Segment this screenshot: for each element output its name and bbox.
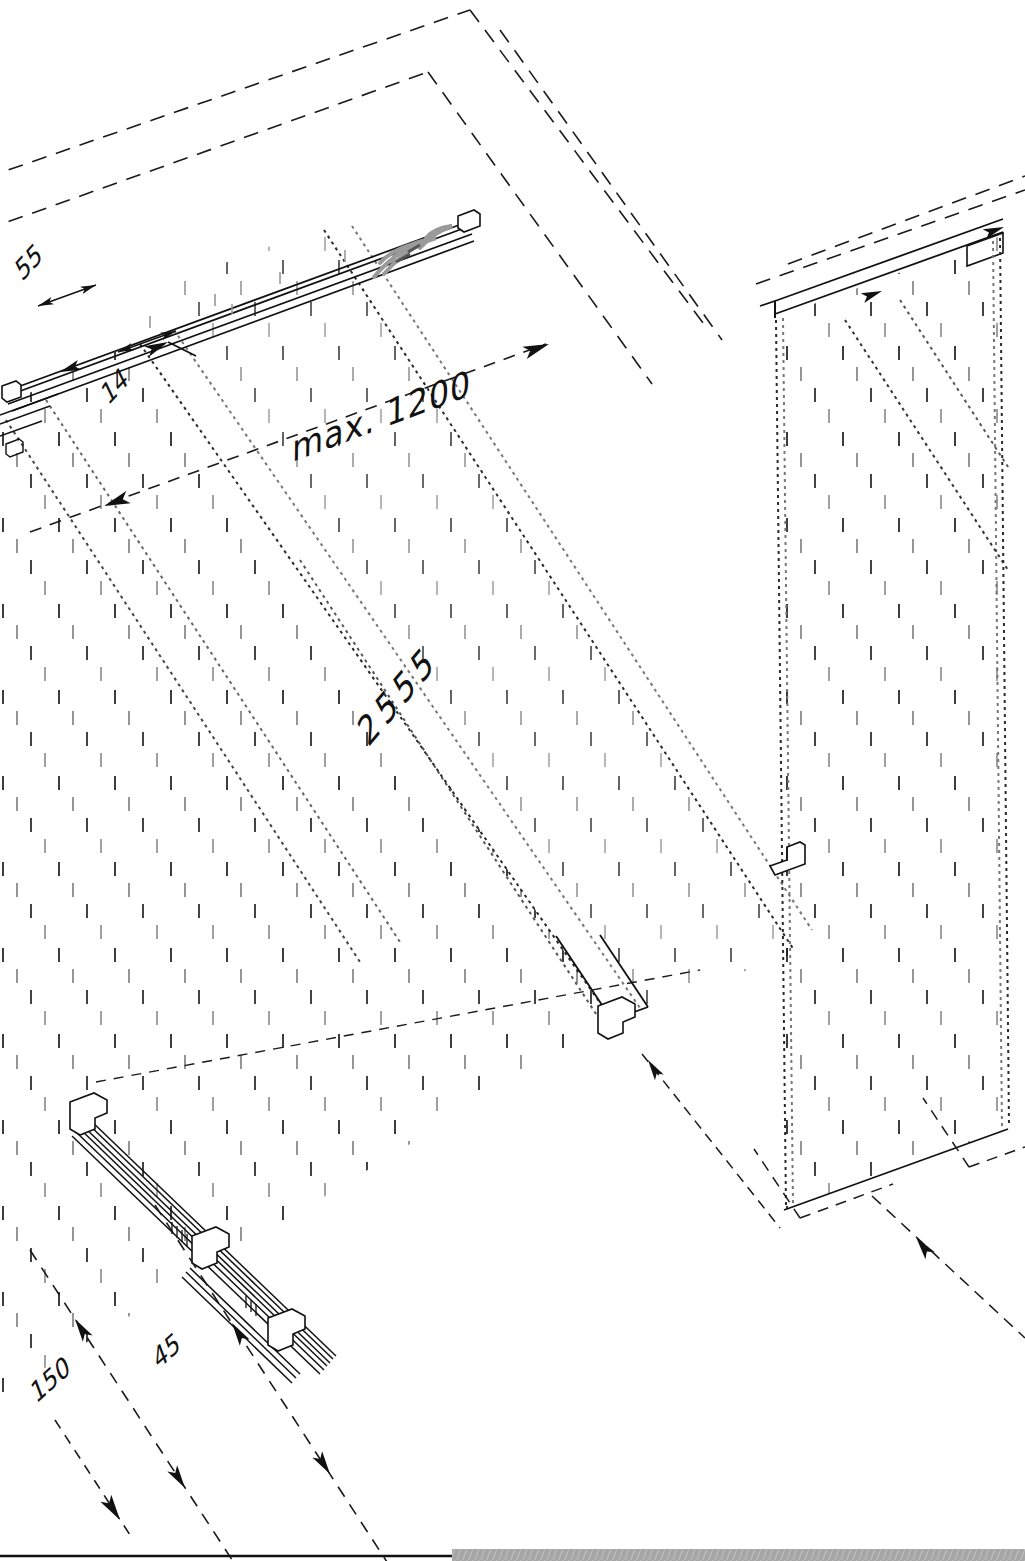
page-bottom-frame [0,1549,1025,1561]
panel-top-step [760,301,775,318]
rail-endcap-right [458,210,480,232]
dim-stub [55,1420,132,1538]
dim-arrow [80,281,97,294]
gray-band [452,1549,1025,1561]
hidden-corner [969,1147,1025,1167]
rail-endcap-left [2,381,21,402]
relation-line [642,1054,780,1228]
technical-drawing-canvas: 55 14 max. 1200 2555 [0,0,1025,1561]
right-panel [754,176,1025,1338]
dim-label-bracket-gap: 45 [145,1328,186,1375]
dim-arrow [312,1451,335,1477]
right-panel-front-face [775,236,1010,1210]
dim-arrow [37,297,54,310]
dim-label-offset-top: 55 [7,239,48,286]
rail-bracket [268,1309,305,1351]
rail-bracket [192,1227,229,1269]
dim-arrow [522,338,551,359]
panel-corner-bracket [598,997,635,1039]
dim-arrow [100,1495,125,1524]
hidden-edge [500,30,722,340]
hidden-edge [470,10,706,327]
hidden-edge [0,10,470,178]
technical-drawing-page: 55 14 max. 1200 2555 [0,0,1025,1561]
dim-arrow [911,1233,934,1259]
dim-arrow [167,1465,190,1491]
leader-bottom-right [872,1196,1025,1338]
